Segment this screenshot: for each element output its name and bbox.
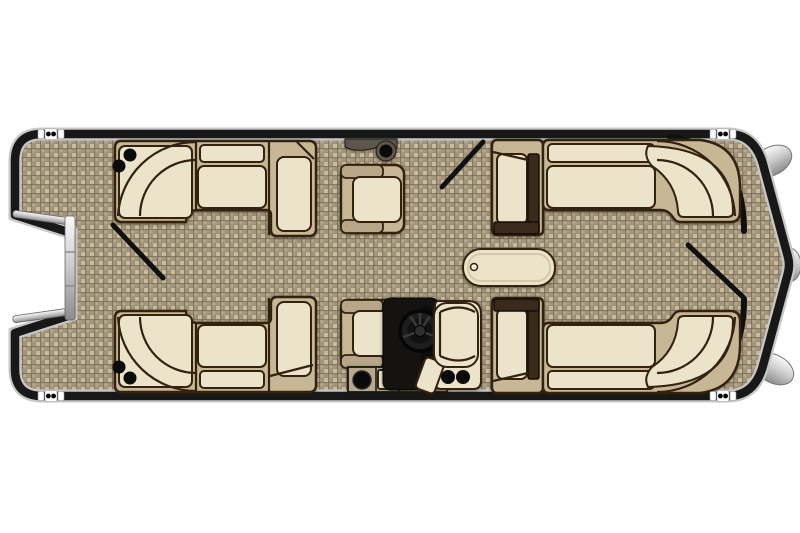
table [463,249,555,286]
seat-cushion [547,325,655,367]
table-pedestal [471,264,478,271]
end-seat-cushion [497,154,527,224]
armrest-panel [494,299,539,311]
cupholder [113,160,126,173]
pod-cupholder [380,145,393,158]
back-cushion [548,371,654,389]
recliner-chair-port [341,165,404,233]
back-cushion [200,371,264,388]
gate-rail-vertical [65,216,75,320]
sink-basin [353,371,371,389]
seat-cushion [198,325,266,367]
back-cushion [200,145,264,162]
back-cushion [548,144,654,162]
gate-opening [2,222,67,324]
cleat-icon [38,391,64,402]
cupholder [124,372,137,385]
cupholder [124,149,137,162]
seat-cushion [198,166,266,208]
floorplan-svg [0,0,800,533]
cupholder [113,361,126,374]
cupholder [441,370,455,384]
cleat-icon [710,391,736,402]
end-seat-cushion [277,302,311,376]
chair-cushion [353,177,401,222]
cleat-icon [38,129,64,140]
seat-cushion [547,166,655,208]
pontoon-floorplan-image [0,0,800,533]
end-seat-cushion [497,309,527,379]
end-seat-cushion [277,157,311,231]
cupholder [456,370,470,384]
cleat-icon [710,129,736,140]
armrest-panel [494,222,539,234]
